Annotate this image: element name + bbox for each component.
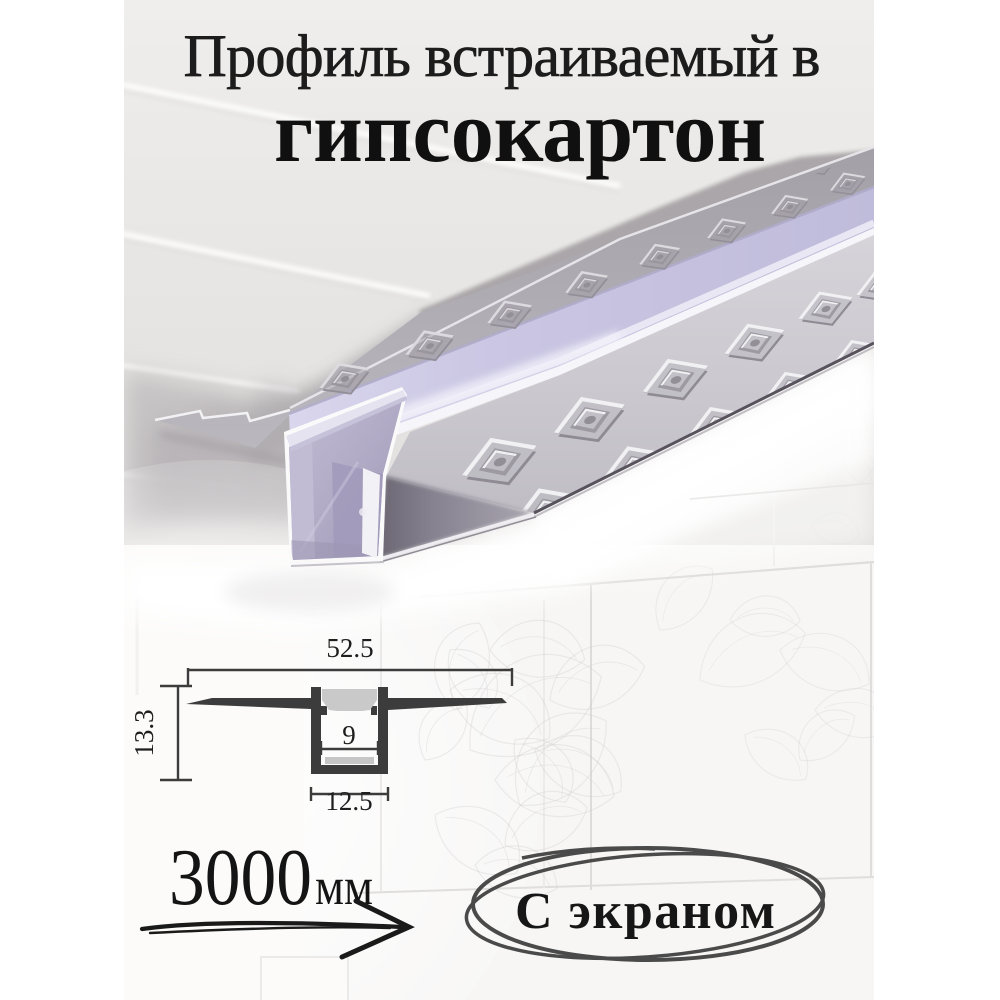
svg-text:гипсокартон: гипсокартон — [274, 84, 766, 181]
svg-text:13.3: 13.3 — [129, 709, 159, 756]
svg-text:9: 9 — [342, 720, 356, 750]
svg-text:3000: 3000 — [169, 832, 312, 922]
svg-text:Профиль встраиваемый в: Профиль встраиваемый в — [184, 23, 821, 89]
svg-text:52.5: 52.5 — [326, 633, 373, 663]
svg-text:С экраном: С экраном — [515, 883, 775, 940]
svg-text:12.5: 12.5 — [325, 786, 372, 816]
